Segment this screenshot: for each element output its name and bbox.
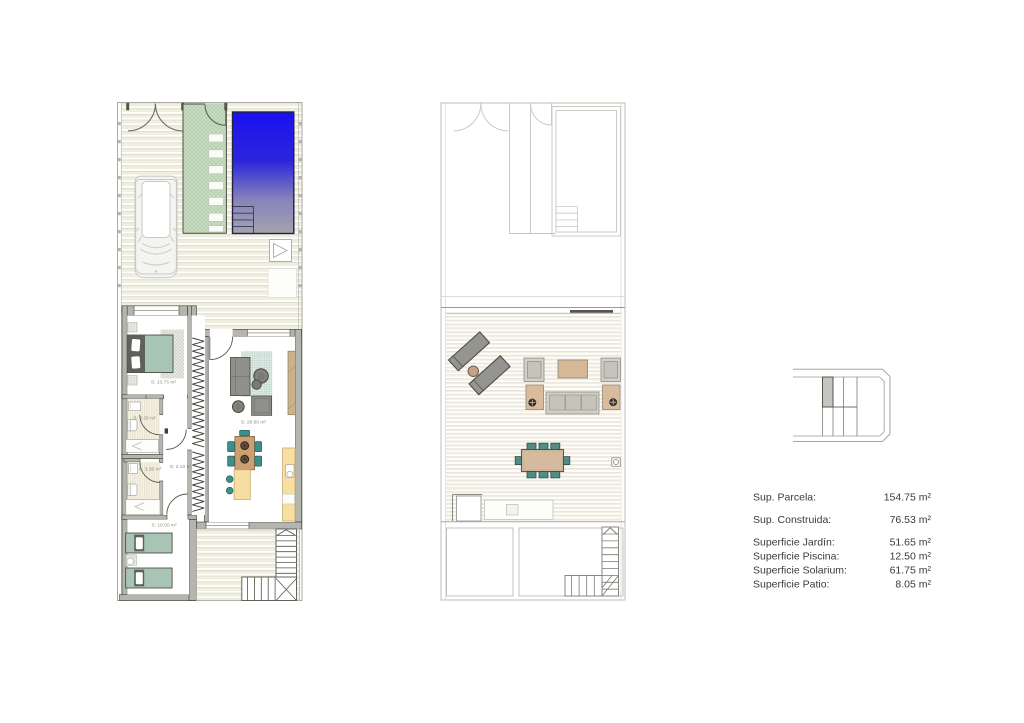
- svg-text:8.05 m²: 8.05 m²: [895, 579, 931, 591]
- svg-text:Superficie Jardín:: Superficie Jardín:: [753, 537, 835, 549]
- svg-text:S: 3.35 m²: S: 3.35 m²: [139, 466, 162, 472]
- svg-text:Superficie Solarium:: Superficie Solarium:: [753, 565, 847, 577]
- svg-text:S: 13.75 m²: S: 13.75 m²: [151, 380, 177, 386]
- svg-text:Sup. Parcela:: Sup. Parcela:: [753, 492, 816, 504]
- svg-text:S: 28.60 m²: S: 28.60 m²: [241, 420, 267, 426]
- svg-text:76.53 m²: 76.53 m²: [890, 514, 932, 526]
- svg-text:51.65 m²: 51.65 m²: [890, 537, 932, 549]
- svg-text:12.50 m²: 12.50 m²: [890, 551, 932, 563]
- svg-text:Sup. Construida:: Sup. Construida:: [753, 514, 831, 526]
- svg-text:S: 2.10 m²: S: 2.10 m²: [170, 464, 193, 470]
- svg-text:S: 10.50 m²: S: 10.50 m²: [151, 523, 177, 529]
- svg-text:Superficie Patio:: Superficie Patio:: [753, 579, 829, 591]
- svg-text:61.75 m²: 61.75 m²: [890, 565, 932, 577]
- svg-text:154.75 m²: 154.75 m²: [884, 492, 932, 504]
- svg-text:S: 3.35 m²: S: 3.35 m²: [133, 416, 156, 422]
- svg-text:Superficie Piscina:: Superficie Piscina:: [753, 551, 839, 563]
